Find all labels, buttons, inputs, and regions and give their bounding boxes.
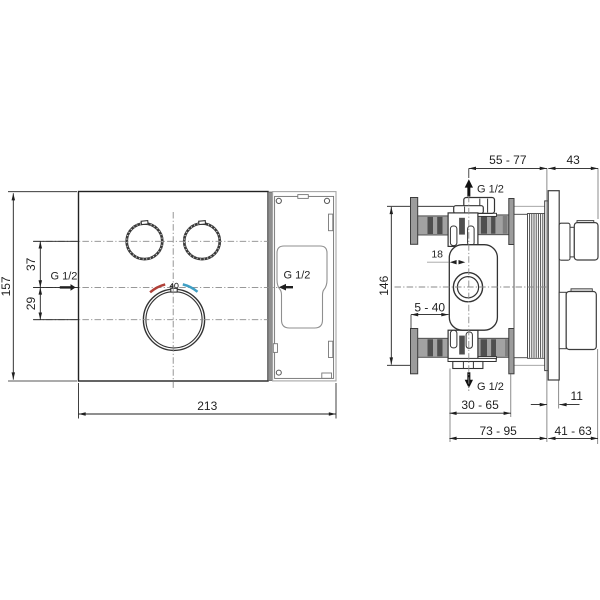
- svg-text:G 1/2: G 1/2: [284, 270, 311, 282]
- svg-text:213: 213: [197, 399, 217, 413]
- svg-text:G 1/2: G 1/2: [477, 381, 504, 393]
- svg-text:73 - 95: 73 - 95: [479, 424, 517, 438]
- svg-text:18: 18: [431, 249, 443, 261]
- svg-text:43: 43: [566, 153, 580, 167]
- svg-text:146: 146: [377, 275, 391, 295]
- svg-text:41 - 63: 41 - 63: [554, 424, 592, 438]
- svg-text:55 - 77: 55 - 77: [489, 153, 527, 167]
- svg-text:30 - 65: 30 - 65: [461, 398, 499, 412]
- svg-text:G 1/2: G 1/2: [51, 270, 78, 282]
- svg-text:29: 29: [24, 297, 38, 311]
- svg-text:157: 157: [0, 276, 13, 296]
- svg-text:G 1/2: G 1/2: [477, 184, 504, 196]
- svg-text:5 - 40: 5 - 40: [414, 300, 445, 314]
- svg-text:37: 37: [24, 257, 38, 271]
- svg-text:11: 11: [570, 389, 583, 403]
